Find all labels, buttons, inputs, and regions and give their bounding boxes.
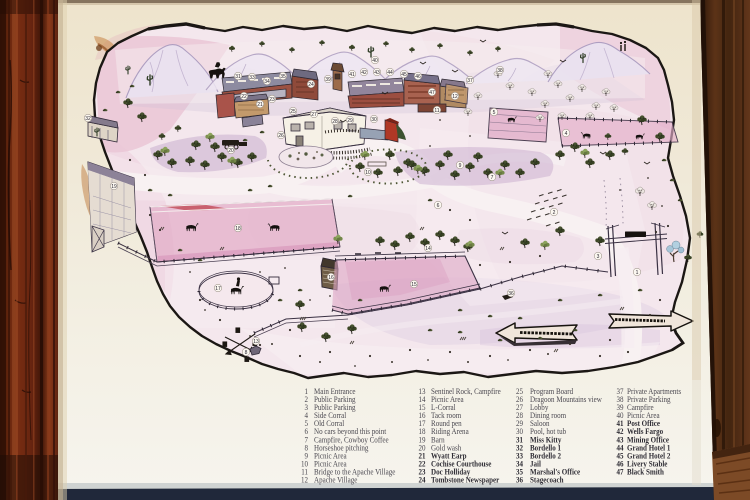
svg-text:10: 10	[365, 170, 371, 176]
svg-text:38: 38	[497, 68, 503, 74]
svg-text:47: 47	[616, 467, 623, 477]
svg-text:13: 13	[253, 339, 259, 345]
svg-text:23: 23	[269, 97, 275, 103]
svg-text:46: 46	[415, 74, 421, 80]
svg-text:42: 42	[361, 70, 367, 76]
svg-text:20: 20	[228, 148, 234, 154]
svg-text:39: 39	[325, 77, 331, 83]
svg-text:40: 40	[372, 58, 378, 64]
svg-text:15: 15	[411, 282, 417, 288]
svg-text:17: 17	[215, 286, 221, 292]
svg-text:24: 24	[308, 82, 314, 88]
svg-text:35: 35	[280, 74, 286, 80]
svg-text:5: 5	[493, 110, 496, 116]
svg-text:22: 22	[241, 94, 247, 100]
svg-text:Black Smith: Black Smith	[627, 467, 664, 477]
svg-text:9: 9	[459, 163, 462, 169]
svg-text:43: 43	[374, 70, 380, 76]
svg-text:25: 25	[290, 109, 296, 115]
svg-text:36: 36	[508, 291, 514, 297]
svg-text:Stagecoach: Stagecoach	[530, 475, 564, 485]
svg-text:21: 21	[257, 102, 263, 108]
svg-text:30: 30	[371, 117, 377, 123]
svg-text:2: 2	[553, 210, 556, 216]
svg-text:12: 12	[452, 94, 458, 100]
svg-text:Tombstone Newspaper: Tombstone Newspaper	[431, 475, 500, 485]
svg-text:14: 14	[425, 246, 431, 252]
svg-text:16: 16	[328, 275, 334, 281]
svg-text:Apache Village: Apache Village	[314, 475, 358, 485]
svg-text:24: 24	[418, 475, 425, 485]
svg-text:32: 32	[85, 116, 91, 122]
svg-text:26: 26	[278, 133, 284, 139]
svg-text:34: 34	[264, 79, 270, 85]
svg-text:37: 37	[467, 78, 473, 84]
svg-text:18: 18	[235, 226, 241, 232]
svg-text:3: 3	[597, 254, 600, 260]
svg-text:1: 1	[636, 270, 639, 276]
svg-text:33: 33	[249, 75, 255, 81]
svg-text:45: 45	[401, 72, 407, 78]
svg-text:7: 7	[491, 175, 494, 181]
svg-text:6: 6	[437, 203, 440, 209]
svg-text:36: 36	[516, 475, 523, 485]
svg-text:19: 19	[111, 184, 117, 190]
svg-text:12: 12	[301, 475, 308, 485]
svg-text:41: 41	[349, 72, 355, 78]
svg-text:4: 4	[565, 131, 568, 137]
svg-text:11: 11	[434, 108, 439, 114]
svg-text:47: 47	[429, 90, 435, 96]
svg-text:29: 29	[347, 118, 353, 124]
svg-text:28: 28	[332, 119, 338, 125]
svg-text:44: 44	[387, 70, 393, 76]
svg-text:27: 27	[311, 112, 317, 118]
svg-text:8: 8	[245, 350, 248, 356]
svg-text:31: 31	[235, 74, 241, 80]
